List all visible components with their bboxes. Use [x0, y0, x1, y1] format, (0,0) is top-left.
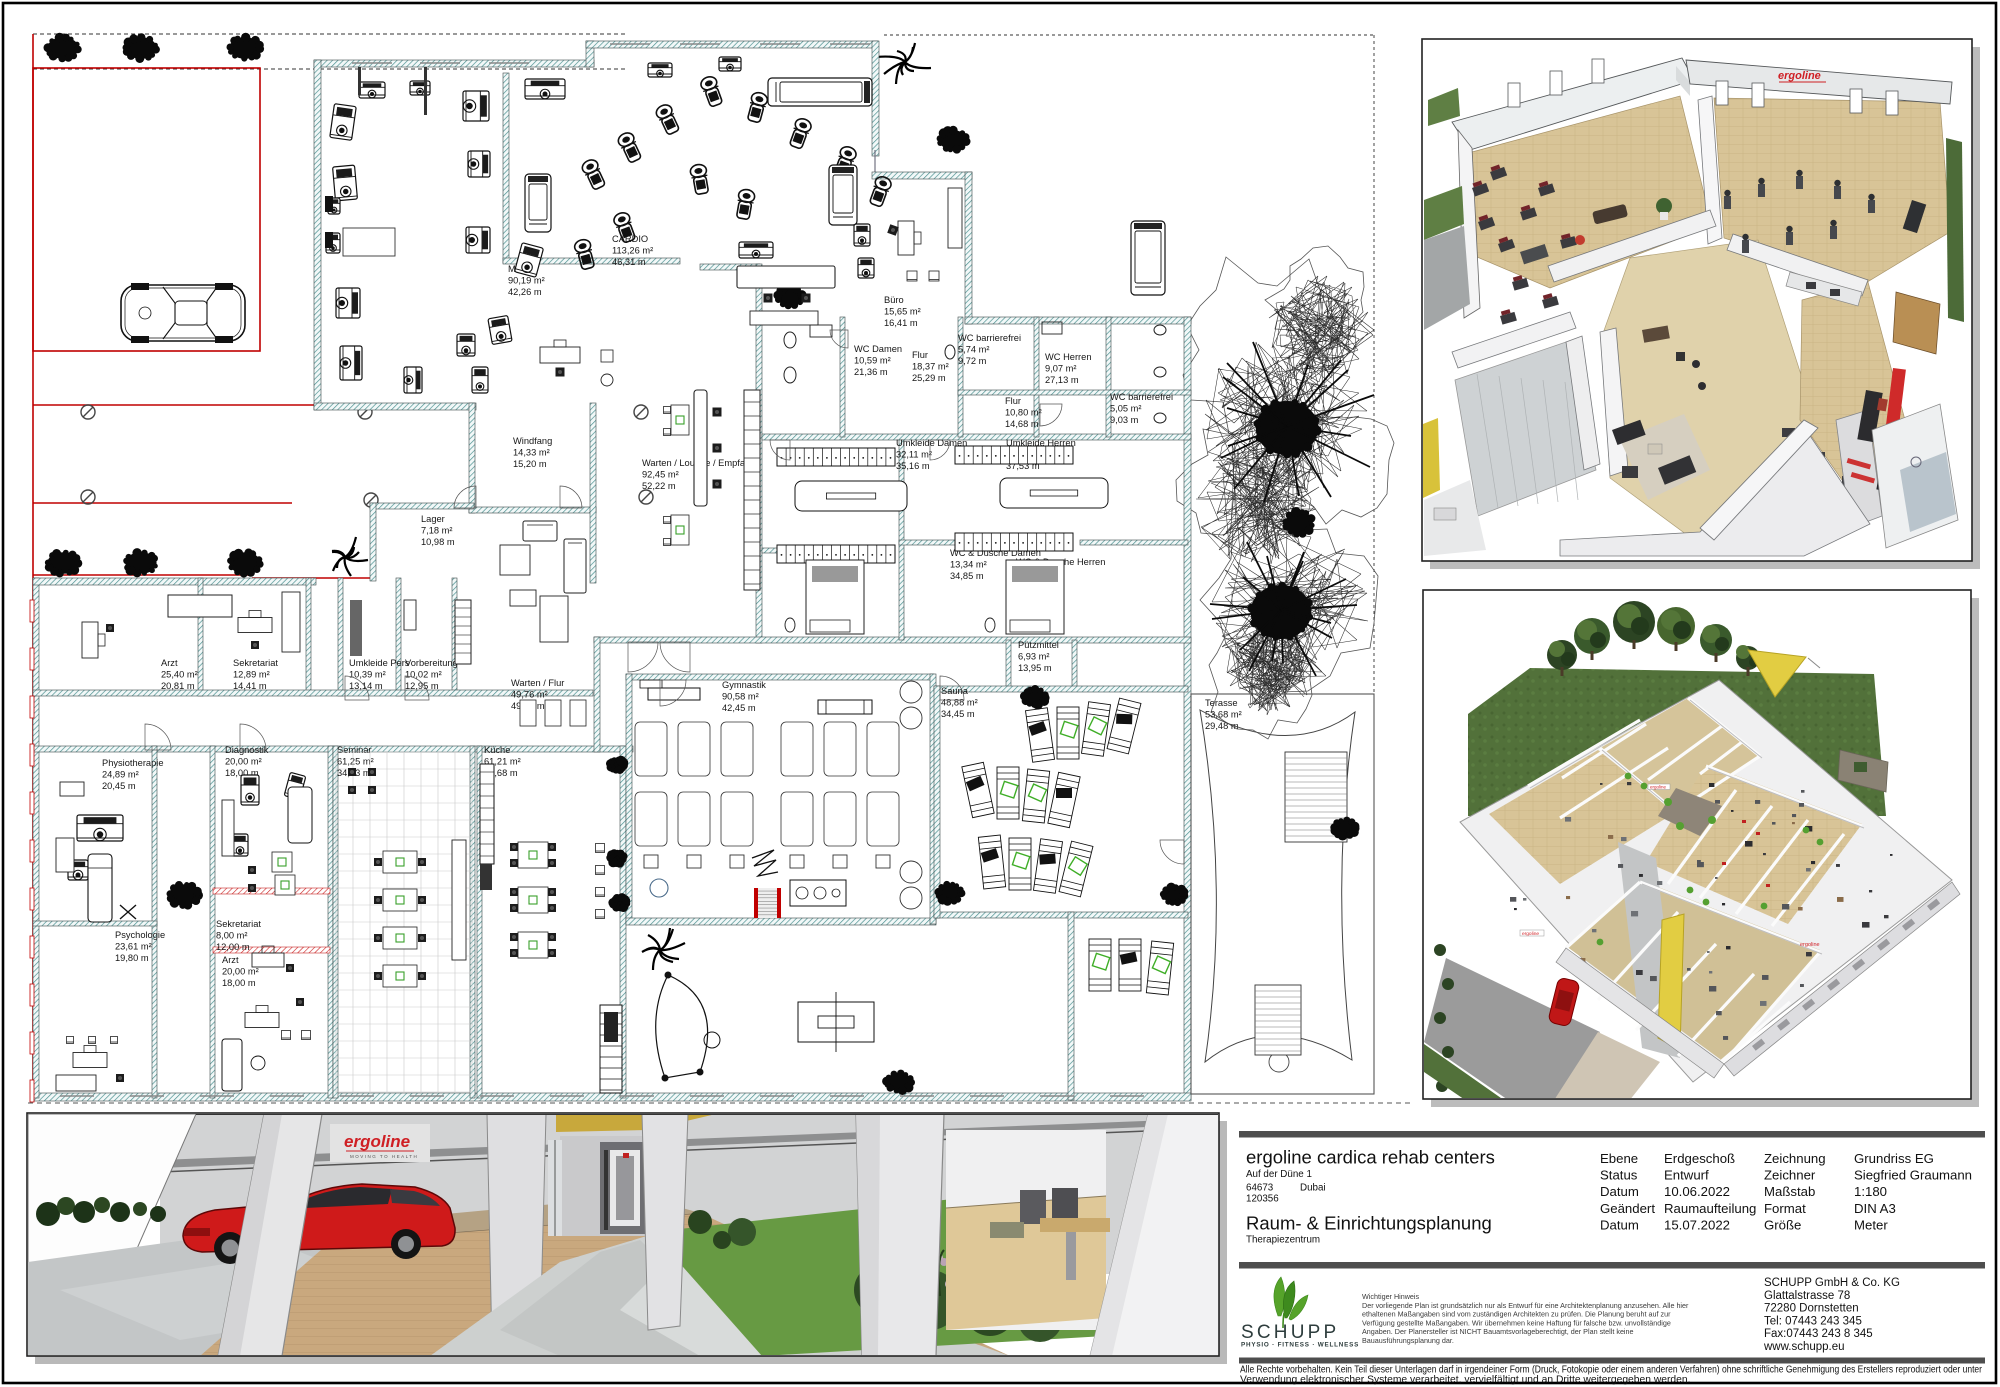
svg-text:SCHUPP: SCHUPP — [1241, 1322, 1339, 1343]
svg-text:Bauausführungsplanung dar.: Bauausführungsplanung dar. — [1362, 1336, 1454, 1345]
svg-text:Siegfried Graumann: Siegfried Graumann — [1854, 1168, 1972, 1183]
svg-text:Glattalstrasse 78: Glattalstrasse 78 — [1764, 1290, 1850, 1302]
svg-text:Angaben. Der Planersteller ist: Angaben. Der Planersteller ist NICHT Bau… — [1362, 1327, 1634, 1336]
svg-text:ergoline cardica rehab centers: ergoline cardica rehab centers — [1246, 1147, 1495, 1168]
svg-text:64673: 64673 — [1246, 1183, 1274, 1194]
svg-text:Datum: Datum — [1600, 1184, 1639, 1199]
svg-text:1:180: 1:180 — [1854, 1184, 1887, 1199]
svg-text:Erdgeschoß: Erdgeschoß — [1664, 1151, 1735, 1166]
svg-text:Entwurf: Entwurf — [1664, 1168, 1709, 1183]
svg-text:120356: 120356 — [1246, 1194, 1279, 1205]
svg-text:ergoline: ergoline — [1522, 931, 1539, 937]
svg-text:Größe: Größe — [1764, 1217, 1801, 1232]
svg-text:Windfang14,33 m²15,20 m: Windfang14,33 m²15,20 m — [513, 436, 552, 469]
svg-text:PHYSIO · FITNESS · WELLNESS: PHYSIO · FITNESS · WELLNESS — [1241, 1342, 1359, 1349]
svg-text:Status: Status — [1600, 1168, 1638, 1183]
svg-text:Zeichnung: Zeichnung — [1764, 1151, 1826, 1166]
svg-text:Zeichner: Zeichner — [1764, 1168, 1816, 1183]
svg-text:ergoline: ergoline — [1778, 70, 1821, 82]
svg-text:Meter: Meter — [1854, 1217, 1888, 1232]
svg-text:DIN A3: DIN A3 — [1854, 1201, 1896, 1216]
svg-text:Fax:07443 243 8 345: Fax:07443 243 8 345 — [1764, 1328, 1873, 1340]
svg-text:Datum: Datum — [1600, 1217, 1639, 1232]
svg-text:Grundriss EG: Grundriss EG — [1854, 1151, 1934, 1166]
svg-text:Raumaufteilung: Raumaufteilung — [1664, 1201, 1756, 1216]
svg-text:Wichtiger Hinweis: Wichtiger Hinweis — [1362, 1292, 1420, 1301]
svg-text:72280 Dornstetten: 72280 Dornstetten — [1764, 1303, 1859, 1315]
svg-text:Dubai: Dubai — [1300, 1183, 1326, 1194]
svg-text:Tel: 07443 243 345: Tel: 07443 243 345 — [1764, 1315, 1862, 1327]
svg-text:ethaltenen Maßangaben sind vom: ethaltenen Maßangaben sind vom zuständig… — [1362, 1310, 1671, 1319]
svg-text:SCHUPP GmbH & Co. KG: SCHUPP GmbH & Co. KG — [1764, 1277, 1900, 1289]
svg-text:Verfügung gestellte Maßangaben: Verfügung gestellte Maßangaben. Wir über… — [1362, 1318, 1671, 1327]
svg-text:Verwendung elektronischer Syst: Verwendung elektronischer Systeme verarb… — [1240, 1375, 1690, 1386]
svg-text:10.06.2022: 10.06.2022 — [1664, 1184, 1730, 1199]
svg-text:Ebene: Ebene — [1600, 1151, 1638, 1166]
svg-text:Der vorliegende Plan ist grund: Der vorliegende Plan ist grundsätzlich n… — [1362, 1301, 1689, 1310]
svg-text:Geändert: Geändert — [1600, 1201, 1655, 1216]
svg-text:Raum- & Einrichtungsplanung: Raum- & Einrichtungsplanung — [1246, 1213, 1492, 1234]
svg-text:15.07.2022: 15.07.2022 — [1664, 1217, 1730, 1232]
svg-text:ergoline: ergoline — [344, 1132, 410, 1151]
svg-text:MOVING TO HEALTH: MOVING TO HEALTH — [350, 1154, 418, 1159]
svg-text:Maßstab: Maßstab — [1764, 1184, 1815, 1199]
svg-text:Format: Format — [1764, 1201, 1806, 1216]
svg-text:ergoline: ergoline — [1650, 785, 1667, 790]
svg-text:www.schupp.eu: www.schupp.eu — [1763, 1341, 1845, 1353]
svg-text:ergoline: ergoline — [1800, 942, 1820, 948]
svg-text:Therapiezentrum: Therapiezentrum — [1246, 1235, 1320, 1246]
svg-text:Auf der Düne 1: Auf der Düne 1 — [1246, 1169, 1312, 1180]
